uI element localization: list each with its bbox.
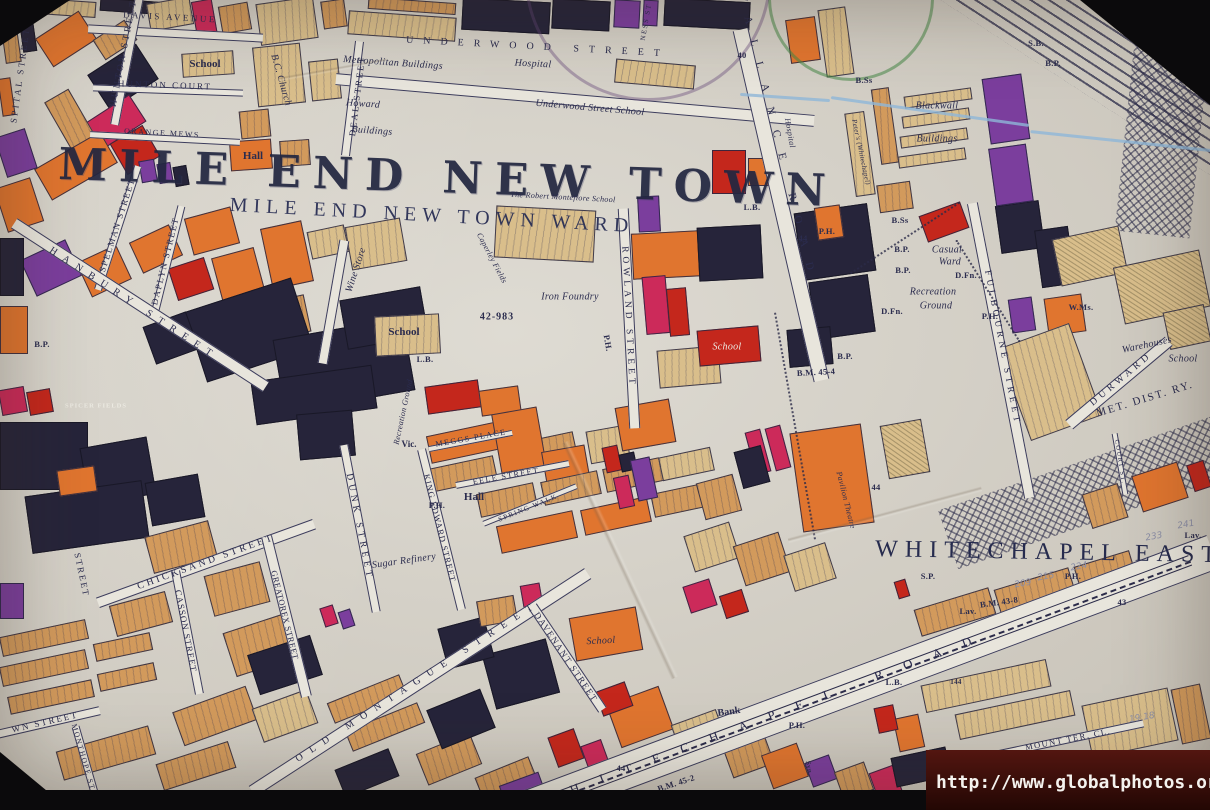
label-b-p: B.P. xyxy=(837,351,853,361)
label-lav: Lav. xyxy=(1184,530,1201,540)
label-l-b: L.B. xyxy=(417,354,434,364)
label-44: 44 xyxy=(798,233,807,243)
building-block xyxy=(874,704,899,734)
building-block xyxy=(719,589,749,619)
label-b-p: B.P. xyxy=(34,339,50,349)
label-recreation: Recreation xyxy=(910,287,957,298)
building-block xyxy=(580,496,652,536)
label-howard: Howard xyxy=(346,97,381,110)
building-block xyxy=(876,181,914,213)
label-school: School xyxy=(586,635,616,648)
label-b-ss: B.Ss xyxy=(855,75,872,85)
building-block xyxy=(56,725,157,780)
label-44: 44 xyxy=(871,482,880,492)
building-block xyxy=(35,11,97,68)
label-hall: Hall xyxy=(464,491,484,503)
building-block xyxy=(426,689,496,750)
building-block xyxy=(320,0,348,30)
building-block xyxy=(783,542,837,592)
watermark-bar: http://www.globalphotos.org xyxy=(926,750,1210,810)
map-photo: DAVIS AVENUESPITAL STREETHUNTON STREETHU… xyxy=(0,0,1210,810)
watermark-url: http://www.globalphotos.org xyxy=(936,772,1210,793)
building-block xyxy=(613,0,640,29)
building-block xyxy=(97,662,157,692)
label-s-p: S.P. xyxy=(921,571,936,581)
building-block xyxy=(631,230,701,279)
label-42-983: 42-983 xyxy=(480,312,514,323)
street-road xyxy=(335,73,814,127)
building-block xyxy=(93,632,153,662)
label-b-ss: B.Ss xyxy=(891,215,908,225)
label-b-p: B.P. xyxy=(1045,58,1061,68)
building-block xyxy=(204,561,271,617)
label-dunk-street: DUNK STREET xyxy=(344,473,375,582)
label-hospital: Hospital xyxy=(514,58,551,71)
building-block xyxy=(26,388,54,416)
building-block xyxy=(666,287,690,337)
label-40: 40 xyxy=(737,50,746,60)
label-b-m-45-4: B.M. 45-4 xyxy=(797,366,836,378)
label-school: School xyxy=(388,326,419,338)
building-block xyxy=(0,128,38,178)
building-block xyxy=(982,74,1031,145)
building-block xyxy=(569,606,644,661)
label-underwood-street: UNDERWOOD STREET xyxy=(406,35,670,60)
building-block xyxy=(424,379,481,414)
building-block xyxy=(239,109,272,140)
building-block xyxy=(988,144,1034,207)
building-block xyxy=(893,714,926,753)
building-block xyxy=(168,257,215,301)
building-block xyxy=(252,689,319,743)
building-block xyxy=(0,306,28,354)
label-p-h: P.H. xyxy=(789,720,805,730)
label-l-b: L.B. xyxy=(886,677,903,687)
building-block xyxy=(172,686,258,747)
label-43: 43 xyxy=(1117,597,1126,607)
building-block xyxy=(0,238,24,296)
label-vic: Vic. xyxy=(402,439,417,449)
label-b-p: B.P. xyxy=(894,244,910,254)
label-ground: Ground xyxy=(920,301,953,312)
building-block xyxy=(615,399,677,452)
building-block xyxy=(547,728,584,768)
building-block xyxy=(880,419,931,479)
building-block xyxy=(218,2,252,35)
building-block xyxy=(319,604,338,627)
building-block xyxy=(642,275,671,335)
label-buildings: Buildings xyxy=(916,134,957,145)
label-b-p: B.P. xyxy=(895,265,911,275)
label-school: School xyxy=(189,58,220,70)
label-casual: Casual xyxy=(932,245,962,256)
building-block xyxy=(817,6,854,77)
label-school: School xyxy=(712,342,741,353)
label-street: STREET xyxy=(72,552,91,598)
label-spicer-fields: SPICER FIELDS xyxy=(65,403,127,410)
label-buildings: Buildings xyxy=(351,124,393,138)
label-iron-foundry: Iron Foundry xyxy=(541,292,598,303)
building-block xyxy=(697,224,764,281)
building-block xyxy=(255,0,318,46)
label-s-b: S.B. xyxy=(1028,38,1044,48)
label-144: 144 xyxy=(950,678,961,686)
map-paper: DAVIS AVENUESPITAL STREETHUNTON STREETHU… xyxy=(0,0,1210,792)
building-block xyxy=(338,608,356,629)
label-d-fn: D.Fn. xyxy=(881,306,903,316)
label-whitechapel-east-w: WHITECHAPEL EAST W xyxy=(875,536,1210,570)
building-block xyxy=(482,638,560,709)
building-block xyxy=(658,447,715,481)
building-block xyxy=(696,474,743,521)
building-block xyxy=(785,16,821,64)
building-block xyxy=(491,406,547,473)
label-p-h: P.H. xyxy=(819,226,835,236)
label-blackwall: Blackwall xyxy=(916,101,959,112)
building-block xyxy=(894,579,911,600)
building-block xyxy=(733,532,792,587)
building-block xyxy=(145,474,206,527)
building-block xyxy=(897,147,966,168)
label-lav: Lav. xyxy=(959,606,976,616)
label-d-fn: D.Fn. xyxy=(955,270,977,280)
building-block xyxy=(871,87,899,165)
building-block xyxy=(551,0,610,31)
label-school: School xyxy=(1168,354,1197,365)
label-l-b: L.B. xyxy=(744,202,761,212)
building-block xyxy=(156,741,237,791)
building-block xyxy=(614,59,696,90)
label-ward: Ward xyxy=(939,257,961,268)
label-w-ms: W.Ms. xyxy=(1069,302,1094,312)
building-block xyxy=(682,578,717,613)
building-block xyxy=(56,465,97,496)
label-p-h: P.H. xyxy=(602,334,615,352)
label-wine-store: Wine Store xyxy=(344,246,369,293)
building-block xyxy=(0,386,28,416)
building-block xyxy=(461,0,551,34)
building-block xyxy=(0,583,24,619)
label-sugar-refinery: Sugar Refinery xyxy=(371,551,436,571)
